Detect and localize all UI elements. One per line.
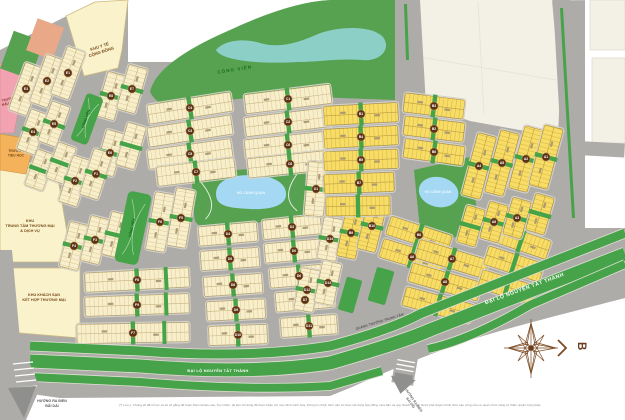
svg-text:C3: C3 bbox=[188, 129, 192, 133]
svg-text:C5: C5 bbox=[188, 152, 192, 156]
svg-text:D11: D11 bbox=[306, 324, 312, 328]
svg-text:E1: E1 bbox=[66, 71, 70, 75]
svg-text:B3: B3 bbox=[432, 104, 436, 108]
svg-text:A1: A1 bbox=[544, 155, 548, 159]
svg-text:A3: A3 bbox=[515, 216, 519, 220]
svg-text:C8: C8 bbox=[288, 162, 292, 166]
svg-text:E5: E5 bbox=[52, 122, 56, 126]
svg-text:A6: A6 bbox=[492, 220, 496, 224]
svg-text:B9: B9 bbox=[349, 231, 353, 235]
svg-text:A4: A4 bbox=[477, 164, 481, 168]
svg-text:B10: B10 bbox=[369, 224, 375, 228]
svg-text:F2: F2 bbox=[73, 179, 77, 183]
svg-text:D14: D14 bbox=[327, 237, 333, 241]
svg-text:D0: D0 bbox=[292, 249, 296, 253]
svg-text:D8: D8 bbox=[231, 283, 235, 287]
svg-text:B4: B4 bbox=[359, 135, 363, 139]
svg-text:E7: E7 bbox=[130, 87, 134, 91]
svg-text:C6: C6 bbox=[286, 143, 290, 147]
svg-text:ĐẠI LỘ NGUYỄN TẤT THÀNH: ĐẠI LỘ NGUYỄN TẤT THÀNH bbox=[187, 368, 248, 373]
svg-text:A6: A6 bbox=[410, 255, 414, 259]
svg-text:C4: C4 bbox=[188, 106, 192, 110]
svg-text:E3: E3 bbox=[24, 87, 28, 91]
svg-text:D9: D9 bbox=[234, 308, 238, 312]
svg-text:A8: A8 bbox=[443, 280, 447, 284]
svg-text:F3: F3 bbox=[93, 238, 97, 242]
svg-text:D12: D12 bbox=[304, 288, 310, 292]
svg-text:D4: D4 bbox=[226, 232, 230, 236]
svg-text:B: B bbox=[575, 342, 587, 350]
svg-text:F1: F1 bbox=[94, 172, 98, 176]
svg-text:F7: F7 bbox=[131, 331, 135, 335]
svg-text:F4: F4 bbox=[72, 244, 76, 248]
svg-text:D7: D7 bbox=[303, 298, 307, 302]
svg-text:C1: C1 bbox=[286, 97, 290, 101]
svg-text:A7: A7 bbox=[450, 257, 454, 261]
svg-text:F6: F6 bbox=[158, 220, 162, 224]
svg-text:HỒ CẢNH QUAN: HỒ CẢNH QUAN bbox=[237, 190, 266, 195]
svg-text:A5: A5 bbox=[500, 161, 504, 165]
svg-text:B2: B2 bbox=[432, 127, 436, 131]
svg-text:E2: E2 bbox=[45, 79, 49, 83]
svg-text:C7: C7 bbox=[194, 170, 198, 174]
svg-text:D1: D1 bbox=[314, 187, 318, 191]
svg-text:B7: B7 bbox=[357, 181, 361, 185]
svg-text:F5: F5 bbox=[179, 216, 183, 220]
svg-text:B5: B5 bbox=[359, 158, 363, 162]
svg-text:D13: D13 bbox=[325, 281, 331, 285]
svg-text:E4: E4 bbox=[31, 130, 35, 134]
svg-text:F9: F9 bbox=[135, 303, 139, 307]
svg-text:D5: D5 bbox=[228, 257, 232, 261]
svg-text:(*) Lưu ý: Chúng tôi đã nỗ lực: (*) Lưu ý: Chúng tôi đã nỗ lực và sẽ cố … bbox=[119, 402, 541, 407]
svg-text:F8: F8 bbox=[135, 278, 139, 282]
svg-text:B6: B6 bbox=[432, 150, 436, 154]
svg-text:B8: B8 bbox=[417, 233, 421, 237]
svg-text:E6: E6 bbox=[108, 151, 112, 155]
svg-text:D10: D10 bbox=[235, 333, 241, 337]
svg-text:HỒ CẢNH QUAN: HỒ CẢNH QUAN bbox=[425, 189, 452, 194]
svg-text:B1: B1 bbox=[359, 112, 363, 116]
svg-text:D6: D6 bbox=[297, 274, 301, 278]
svg-text:D2: D2 bbox=[290, 225, 294, 229]
svg-text:E8: E8 bbox=[109, 94, 113, 98]
svg-text:C2: C2 bbox=[286, 120, 290, 124]
svg-text:A2: A2 bbox=[524, 157, 528, 161]
